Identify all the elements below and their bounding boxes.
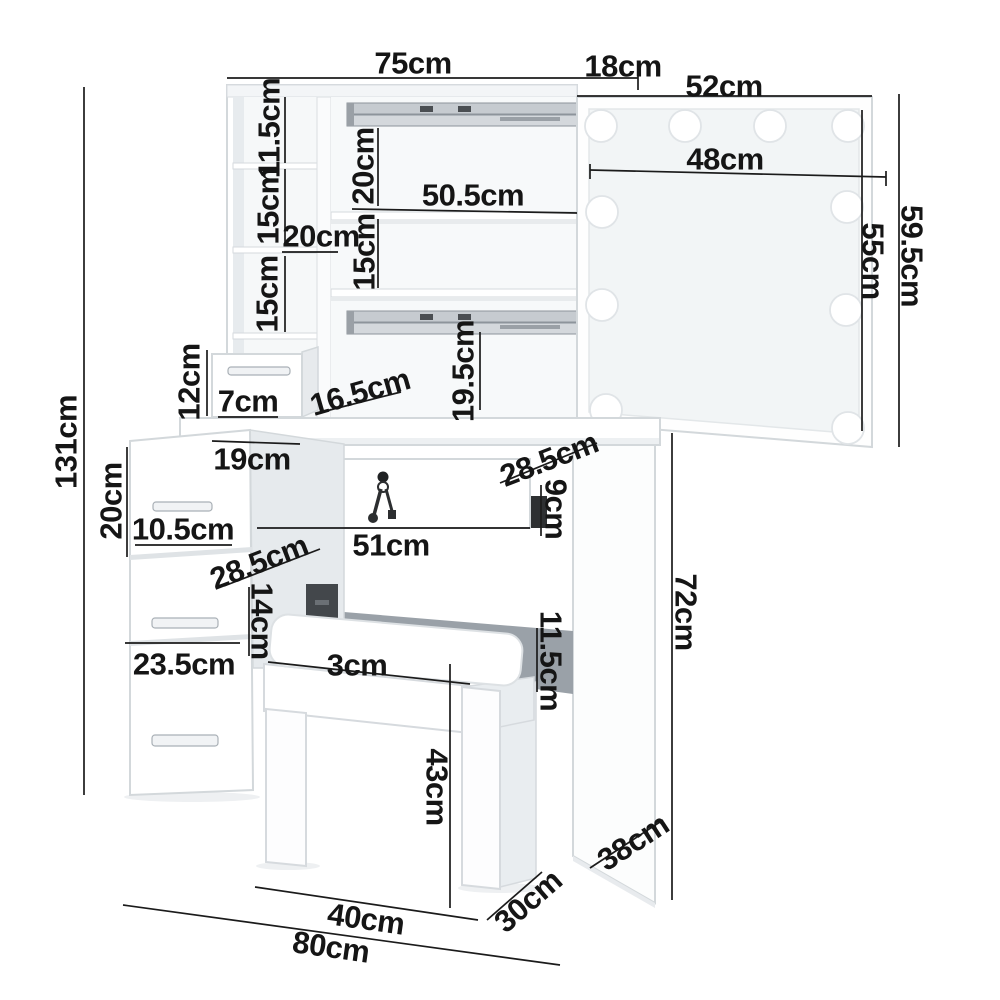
slide-cap (347, 311, 354, 334)
dim-drawer-side: 9cm (541, 479, 572, 540)
stool (256, 613, 542, 893)
bulb (754, 110, 786, 142)
keyhole-icon (378, 472, 389, 483)
slide-groove (500, 117, 560, 121)
stool-left-leg (266, 709, 306, 866)
key-icon (368, 513, 378, 523)
hutch-divider (317, 97, 331, 420)
dim-mirror-glass-height: 55cm (858, 222, 889, 299)
bulb (832, 110, 864, 142)
dim-pedestal-face: 10.5cm (132, 514, 234, 545)
dim-mirror-offset: 18cm (584, 51, 661, 82)
pedestal-handle-1 (153, 502, 212, 511)
dim-cubby-middle: 15cm (253, 167, 284, 244)
dim-drawer-width: 51cm (352, 530, 429, 561)
dim-mirror-height: 59.5cm (897, 205, 928, 307)
slide-clip (458, 106, 471, 112)
pedestal-side-rail-detail (315, 600, 329, 605)
small-drawer-handle (228, 367, 290, 375)
dim-mirror-width: 52cm (685, 71, 762, 102)
bulb (586, 196, 618, 228)
dim-overall-height: 131cm (51, 395, 82, 489)
furniture-line-art (0, 0, 1000, 1000)
bulb (831, 191, 863, 223)
slide-clip (420, 106, 433, 112)
bulb (586, 289, 618, 321)
dim-desk-height: 72cm (671, 573, 702, 650)
dim-under-desk-gap: 11.5cm (536, 611, 567, 711)
dim-cubby-bottom: 15cm (252, 255, 283, 332)
dim-side-gap: 19cm (213, 444, 290, 475)
dim-cushion: 3cm (327, 650, 388, 681)
bulb (669, 110, 701, 142)
dim-small-drawer-width: 7cm (218, 386, 279, 417)
dim-pedestal-drawer-height: 20cm (96, 462, 127, 539)
stool-right-leg (462, 687, 500, 889)
pedestal-handle-3 (152, 735, 218, 746)
drawer-slides-top (347, 103, 577, 126)
dim-top-width: 75cm (374, 48, 451, 79)
dim-pedestal-gap: 14cm (247, 582, 278, 659)
pedestal-handle-2 (152, 618, 218, 628)
dim-hutch-lower: 15cm (349, 213, 380, 290)
dim-mirror-glass-width: 48cm (686, 144, 763, 175)
dim-stool-height: 43cm (422, 748, 453, 825)
dim-hutch-upper: 20cm (348, 127, 379, 204)
dim-cubby-top: 11.5cm (254, 78, 285, 178)
bulb (585, 110, 617, 142)
cubby-shelf-3 (233, 333, 317, 339)
dim-bottom-drawer: 23.5cm (133, 649, 235, 680)
dimension-diagram: 75cm 18cm 52cm 48cm 59.5cm 55cm 131cm 11… (0, 0, 1000, 1000)
dim-hutch-inner-width: 50.5cm (422, 180, 524, 211)
key-icon (388, 510, 396, 519)
slide-groove (500, 325, 560, 329)
dim-hutch-base: 19.5cm (448, 320, 479, 422)
bulb (832, 412, 864, 444)
hutch-shelf-lower-shadow (331, 297, 577, 301)
dim-small-drawer-height: 12cm (174, 343, 205, 420)
slide-cap (347, 103, 354, 126)
slide-clip (420, 314, 433, 320)
